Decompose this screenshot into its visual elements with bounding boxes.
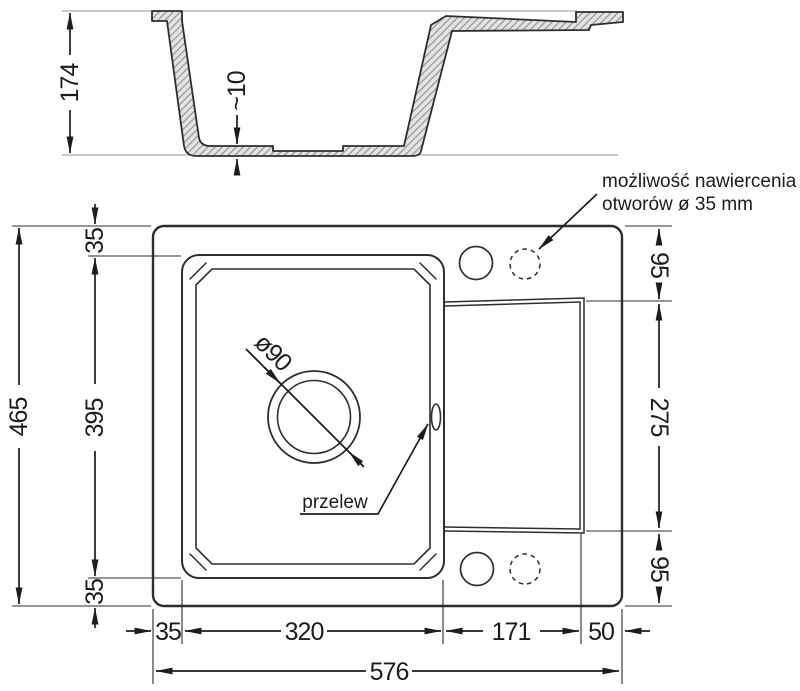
overflow-callout: przelew: [300, 424, 428, 514]
dim-right-top: 95: [645, 229, 673, 299]
dim-total-width: 576: [156, 658, 619, 686]
drill-note-line1: możliwość nawiercenia: [602, 171, 797, 192]
dim-right-middle: 275: [645, 304, 673, 528]
dim-section-height-label: 174: [56, 63, 84, 103]
dim-total-height: 465: [5, 228, 33, 604]
dim-drainer-width-label: 171: [492, 618, 531, 646]
technical-drawing: 174 ~10: [0, 0, 800, 691]
section-view: 174 ~10: [56, 11, 623, 174]
drill-note-line2: otworów ø 35 mm: [602, 194, 753, 215]
dim-bottom-thickness-label: ~10: [223, 71, 251, 111]
dim-bowl-length-label: 395: [81, 399, 109, 438]
drill-note: możliwość nawiercenia otworów ø 35 mm: [539, 171, 797, 249]
dim-total-width-label: 576: [370, 658, 409, 686]
dim-bowl-width-label: 320: [285, 618, 324, 646]
dim-right-bottom-label: 95: [645, 556, 673, 582]
drill-note-leader: [539, 194, 597, 249]
dim-drainer-width: 171: [446, 618, 579, 646]
optional-tap-hole-bottom: [510, 554, 540, 584]
dim-ledge-width: 50: [588, 618, 650, 646]
dim-ledge-width-label: 50: [588, 618, 614, 646]
dim-margin-top-label: 35: [81, 228, 109, 254]
dim-right-top-label: 95: [645, 252, 673, 278]
dim-bottom-thickness: ~10: [223, 71, 251, 174]
dimension-lines: 465 35 395 35 35 320: [5, 204, 673, 686]
tap-hole-bottom: [461, 553, 494, 586]
dim-margin-top: 35: [81, 204, 109, 254]
overflow-hole: [432, 404, 441, 430]
dim-right-middle-label: 275: [645, 398, 673, 437]
drain-dim-line: [246, 349, 364, 467]
overflow-label: przelew: [302, 492, 368, 513]
dim-bowl-width: 320: [185, 618, 441, 646]
dim-margin-bottom-label: 35: [81, 579, 109, 605]
dim-section-height: 174: [56, 13, 84, 153]
dim-drain-diameter-label: ø90: [249, 328, 297, 376]
dim-right-bottom: 95: [645, 534, 673, 603]
drainboard-panel: [444, 298, 584, 533]
dim-margin-bottom: 35: [81, 560, 109, 628]
tap-hole-top: [460, 247, 493, 280]
dim-drain-diameter: ø90: [246, 328, 364, 467]
sink-outline: [153, 226, 622, 606]
optional-tap-hole-top: [510, 249, 540, 279]
dim-bowl-length: 395: [81, 258, 109, 576]
dim-margin-left-label: 35: [155, 618, 181, 646]
extension-lines: [12, 226, 672, 684]
drawing-canvas: 174 ~10: [0, 0, 800, 691]
plan-view: ø90 przelew możliwość nawiercenia otworó…: [153, 171, 797, 606]
dim-total-height-label: 465: [5, 398, 33, 437]
